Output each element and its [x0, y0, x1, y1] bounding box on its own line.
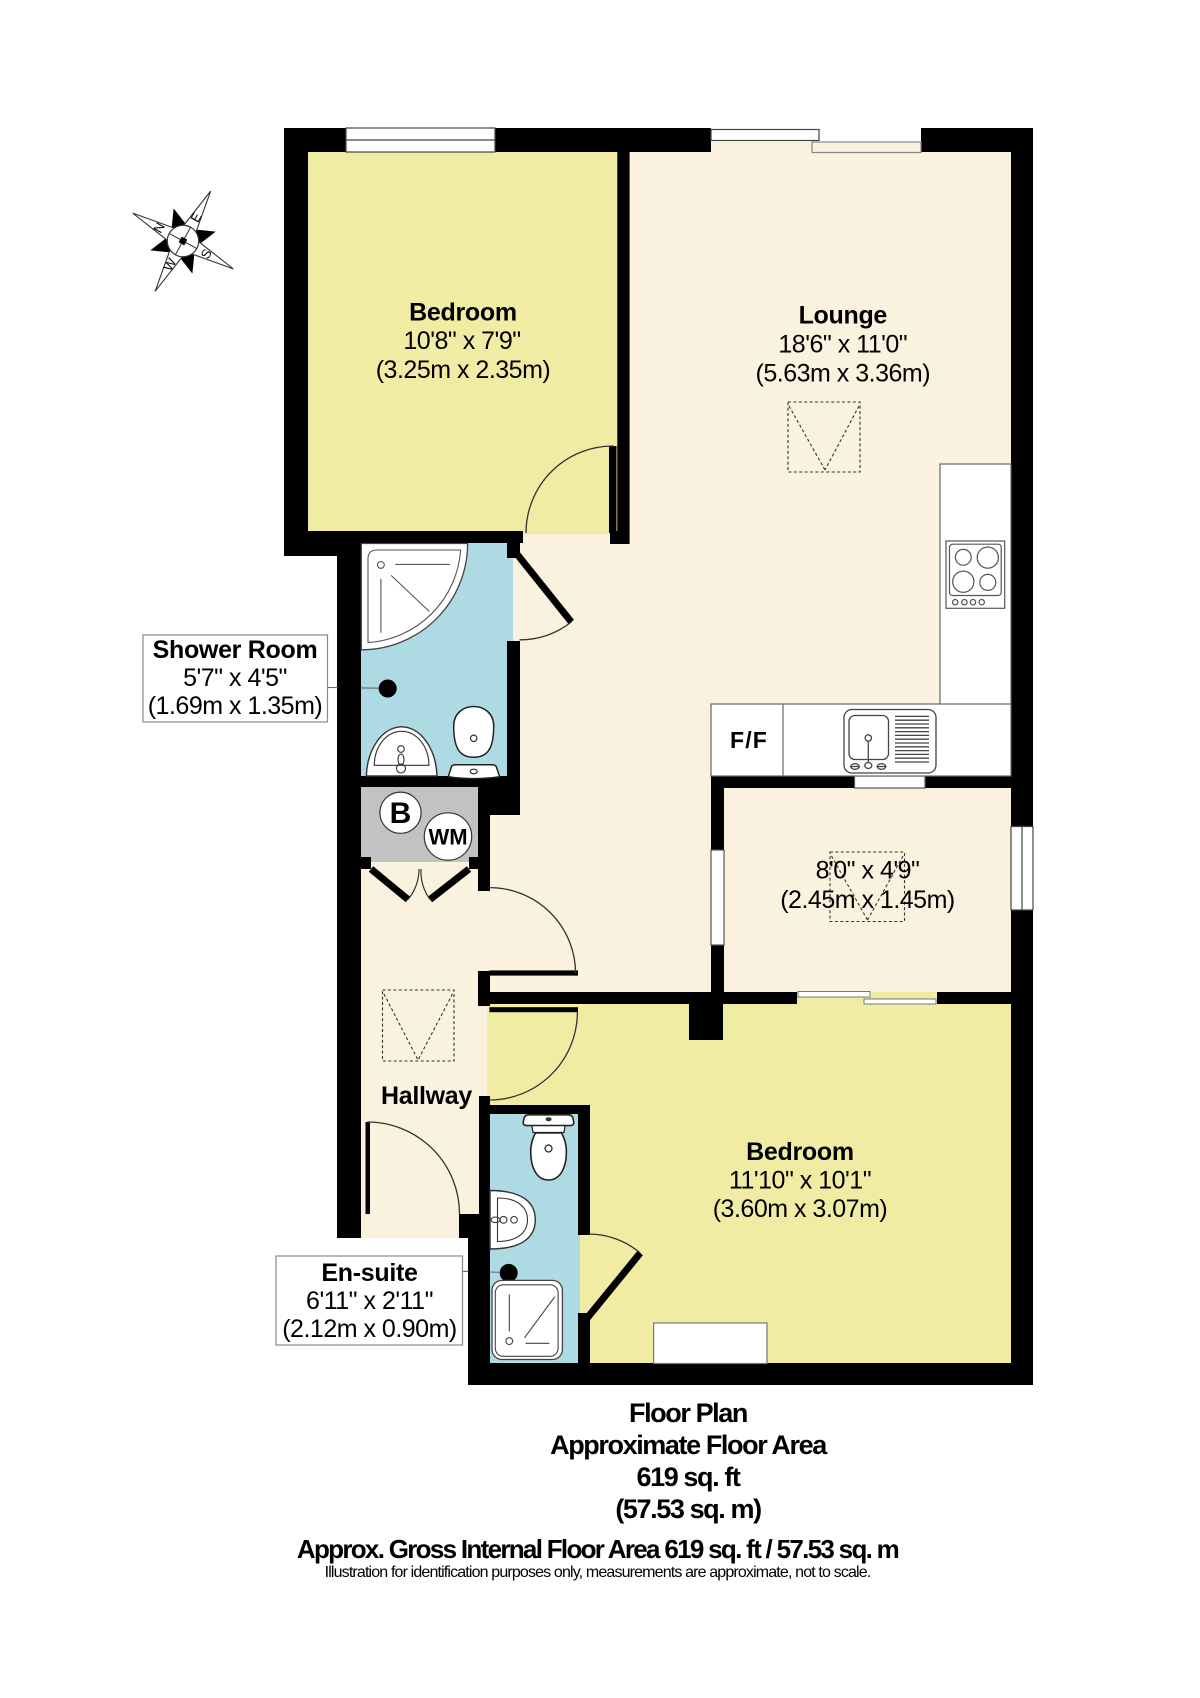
svg-text:(1.69m x 1.35m): (1.69m x 1.35m)	[148, 692, 323, 720]
svg-text:(3.25m x 2.35m): (3.25m x 2.35m)	[376, 356, 551, 384]
svg-text:5'7" x 4'5": 5'7" x 4'5"	[183, 664, 287, 692]
svg-text:(5.63m x 3.36m): (5.63m x 3.36m)	[756, 360, 931, 388]
svg-text:B: B	[390, 797, 412, 830]
svg-text:Bedroom: Bedroom	[409, 299, 517, 327]
svg-text:Lounge: Lounge	[799, 302, 888, 330]
svg-text:(3.60m x 3.07m): (3.60m x 3.07m)	[713, 1195, 888, 1223]
svg-text:11'10" x 10'1": 11'10" x 10'1"	[729, 1167, 871, 1195]
svg-text:8'0" x 4'9": 8'0" x 4'9"	[816, 857, 920, 885]
svg-text:Shower Room: Shower Room	[153, 636, 318, 664]
svg-text:En-suite: En-suite	[321, 1259, 418, 1287]
svg-text:(2.12m x 0.90m): (2.12m x 0.90m)	[282, 1315, 457, 1343]
svg-text:(2.45m x 1.45m): (2.45m x 1.45m)	[780, 886, 955, 914]
svg-text:WM: WM	[428, 825, 467, 850]
svg-text:6'11" x 2'11": 6'11" x 2'11"	[306, 1287, 433, 1315]
svg-text:Approx. Gross Internal Floor A: Approx. Gross Internal Floor Area 619 sq…	[297, 1534, 899, 1564]
svg-text:Illustration for identificatio: Illustration for identification purposes…	[325, 1564, 871, 1581]
svg-text:Floor Plan: Floor Plan	[629, 1398, 747, 1428]
svg-text:Hallway: Hallway	[381, 1082, 472, 1110]
svg-text:10'8" x 7'9": 10'8" x 7'9"	[403, 327, 520, 355]
svg-text:Bedroom: Bedroom	[746, 1138, 854, 1166]
svg-text:18'6" x 11'0": 18'6" x 11'0"	[778, 331, 907, 359]
svg-text:F/F: F/F	[730, 727, 768, 753]
svg-text:Approximate Floor Area: Approximate Floor Area	[550, 1430, 828, 1460]
svg-text:(57.53 sq. m): (57.53 sq. m)	[615, 1494, 761, 1524]
svg-text:619 sq. ft: 619 sq. ft	[636, 1462, 740, 1492]
